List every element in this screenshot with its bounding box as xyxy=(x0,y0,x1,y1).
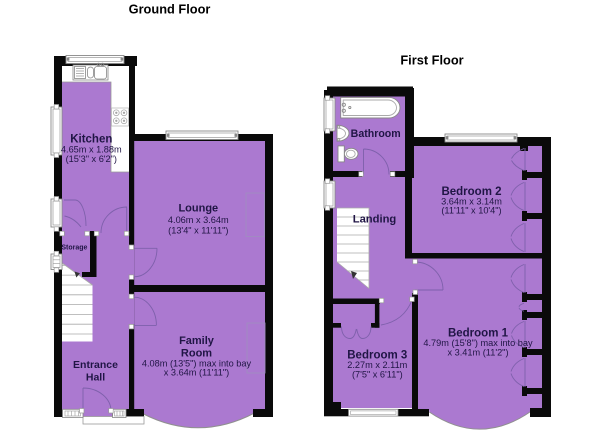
svg-text:x 3.41m (11'2"): x 3.41m (11'2") xyxy=(447,348,508,358)
svg-text:(11'11" x 10'4"): (11'11" x 10'4") xyxy=(441,206,501,216)
svg-text:Bathroom: Bathroom xyxy=(351,128,401,140)
svg-text:4.79m (15'8") max into bay: 4.79m (15'8") max into bay xyxy=(423,338,533,348)
svg-text:Ground Floor: Ground Floor xyxy=(129,2,211,17)
svg-text:Hall: Hall xyxy=(86,372,105,384)
svg-text:x 3.64m (11'11"): x 3.64m (11'11") xyxy=(164,368,229,378)
svg-text:(7'5" x 6'11"): (7'5" x 6'11") xyxy=(352,370,403,380)
svg-text:Entrance: Entrance xyxy=(73,359,118,371)
svg-text:Lounge: Lounge xyxy=(178,203,218,215)
svg-text:Landing: Landing xyxy=(353,214,397,226)
svg-text:(13'4" x 11'11"): (13'4" x 11'11") xyxy=(168,225,228,235)
svg-text:(15'3" x 6'2"): (15'3" x 6'2") xyxy=(66,154,117,164)
svg-text:2.27m x 2.11m: 2.27m x 2.11m xyxy=(347,360,407,370)
svg-text:4.06m x 3.64m: 4.06m x 3.64m xyxy=(168,215,229,225)
svg-text:Family: Family xyxy=(179,335,215,347)
svg-text:Kitchen: Kitchen xyxy=(70,133,112,145)
svg-text:First Floor: First Floor xyxy=(400,53,463,68)
svg-text:Storage: Storage xyxy=(61,245,87,252)
